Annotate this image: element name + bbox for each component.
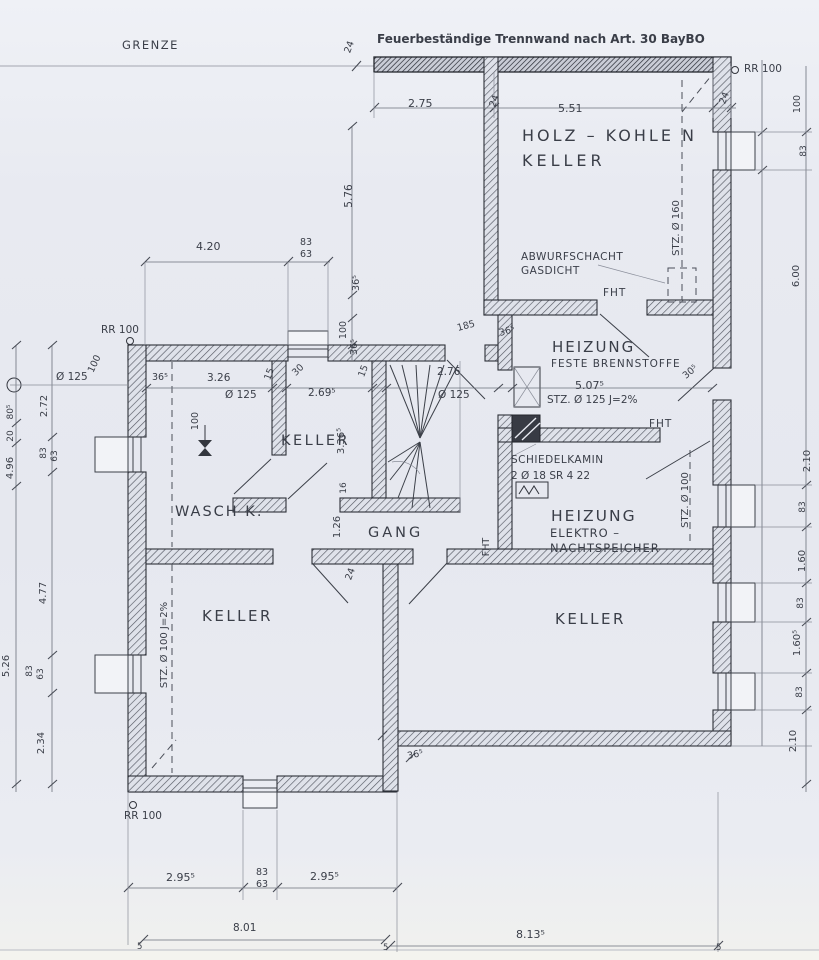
dim-4-96: 4.96 [5,457,16,479]
label-schiedelkamin-1: SCHIEDELKAMIN [511,454,604,466]
room-label-keller-right: KELLER [555,610,626,628]
dim-right-83c: 83 [796,597,806,608]
dim-63-left2: 63 [36,668,46,679]
windows [95,132,755,808]
room-label-gang: GANG [368,525,423,541]
dim-5-tick-1: 5 [137,942,142,952]
dim-right-600: 6.00 [791,265,802,287]
dim-63-bottom: 63 [256,879,268,890]
dim-2-955-a: 2.95⁵ [166,871,195,884]
dim-5-tick-2: 5 [383,943,388,953]
dim-185: 185 [456,319,476,334]
dim-right-210b: 2.10 [788,730,799,752]
dim-4-77: 4.77 [38,582,49,604]
dim-right-100: 100 [792,95,803,113]
dim-3-365: 3.36⁵ [336,428,347,454]
dim-83-left2: 83 [25,665,35,676]
dim-right-83a: 83 [799,145,809,156]
dim-o125-stair: Ø 125 [438,389,470,401]
dim-right-83b: 83 [798,501,808,512]
dim-83-top: 83 [300,237,312,248]
room-label-heizung-feste-1: HEIZUNG [552,338,635,356]
label-grenze: GRENZE [122,38,179,52]
dim-1-26: 1.26 [332,516,343,538]
dim-63-left1: 63 [50,450,60,461]
label-stz-100-elektro: STZ. Ø 100 [679,472,691,528]
dim-right-210a: 2.10 [802,450,813,472]
dim-2-955-b: 2.95⁵ [310,870,339,883]
dim-16: 16 [339,482,349,494]
labels-layer: Feuerbeständige Trennwand nach Art. 30 B… [1,32,813,953]
room-label-heizung-elektro-1: HEIZUNG [551,507,637,525]
label-rr100-topright: RR 100 [744,63,782,75]
dim-63-top: 63 [300,249,312,260]
floorplan-drawing: Feuerbeständige Trennwand nach Art. 30 B… [0,0,819,960]
dim-100-leftwall: 100 [86,353,104,374]
dim-8-135: 8.13⁵ [516,928,545,941]
dim-24-gang: 24 [343,567,357,582]
rr100-marker-topright [732,67,739,74]
dim-15-b: 15 [356,364,370,379]
dim-30-diag: 30 [290,362,306,378]
dim-5-51: 5.51 [558,102,583,115]
dim-right-83d: 83 [795,686,805,697]
dim-20-left: 20 [6,430,16,442]
rr100-marker-bottomleft [130,802,137,809]
label-stz-160: STZ. Ø 160 [670,200,682,256]
walls [128,57,731,792]
dim-2-75: 2.75 [408,97,433,110]
dim-305-right: 30⁵ [681,363,700,382]
room-label-heizung-elektro-3: NACHTSPEICHER [550,541,660,555]
dim-chain-365: 36⁵ [152,372,168,383]
staircase [388,361,460,512]
firewall-top [374,57,731,72]
dashed-lines [152,76,711,773]
dim-365-step: 36⁵ [406,748,424,762]
dim-2-76: 2.76 [437,366,461,378]
label-stz-125: STZ. Ø 125 J=2% [547,394,638,406]
dim-right-1605: 1.60⁵ [792,630,803,656]
note-firewall: Feuerbeständige Trennwand nach Art. 30 B… [377,32,705,46]
dim-365-a: 36⁵ [351,275,362,291]
room-label-keller-left: KELLER [202,607,273,625]
floor-drain-waschk [198,440,212,456]
dim-o125-waschk: Ø 125 [225,389,257,401]
room-label-heizung-elektro-2: ELEKTRO – [550,526,620,540]
dim-5-tick-3: 5 [716,943,721,953]
label-rr100-bottomleft: RR 100 [124,810,162,822]
dim-24-grenze: 24 [342,40,356,55]
dim-right-160: 1.60 [797,550,808,572]
label-fht-elektro: FHT [649,418,672,430]
label-schiedelkamin-2: 2 Ø 18 SR 4 22 [511,470,590,482]
dim-3-26: 3.26 [207,372,231,384]
scan-edge-bottom [0,950,819,960]
dim-365-b: 36⁵ [349,339,360,355]
label-fht-holzkeller: FHT [603,287,626,299]
rr100-marker-left [127,338,134,345]
label-stz-100-keller: STZ. Ø 100 J=2% [158,602,170,688]
boundary-grenze-line [0,61,374,71]
dim-5-76: 5.76 [343,184,355,208]
label-fht-gang: FHT [481,538,492,557]
dim-2-72: 2.72 [39,395,50,417]
room-label-heizung-feste-2: FESTE BRENNSTOFFE [551,358,681,370]
dim-4-20: 4.20 [196,240,221,253]
dim-8-01: 8.01 [233,922,256,934]
room-label-holzkohlen-1: HOLZ – KOHLE N [522,126,697,145]
dim-2-34: 2.34 [36,732,47,754]
room-label-holzkohlen-2: KELLER [522,151,606,170]
dim-83-bottom: 83 [256,867,268,878]
label-abwurfschacht-2: GASDICHT [521,265,580,277]
dim-2-695: 2.69⁵ [308,387,336,399]
dim-100-a: 100 [338,321,349,339]
dim-5-26: 5.26 [1,655,12,677]
dim-100-waschk: 100 [190,412,201,430]
room-label-waschk: WASCH K. [175,504,263,520]
label-abwurfschacht-1: ABWURFSCHACHT [521,251,623,263]
dim-805-left: 80⁵ [6,404,16,419]
dim-83-left1: 83 [39,447,49,458]
floorplan-scan: Feuerbeständige Trennwand nach Art. 30 B… [0,0,819,960]
label-rr100-left: RR 100 [101,324,139,336]
dim-o125-left: Ø 125 [56,371,88,383]
dim-5-075: 5.07⁵ [575,379,604,392]
